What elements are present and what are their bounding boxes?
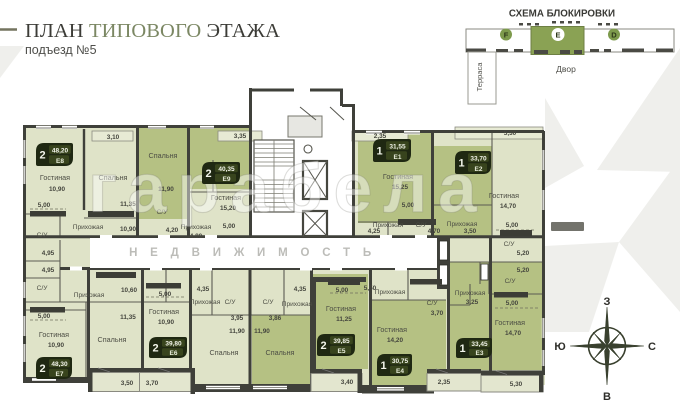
svg-text:F: F bbox=[504, 31, 509, 40]
svg-text:Спальня: Спальня bbox=[266, 348, 295, 357]
svg-text:С/У: С/У bbox=[37, 285, 49, 292]
svg-text:Прихожая: Прихожая bbox=[282, 301, 313, 308]
svg-text:С/У: С/У bbox=[225, 299, 237, 306]
svg-text:2: 2 bbox=[205, 168, 211, 180]
svg-text:48,20: 48,20 bbox=[52, 147, 69, 154]
svg-text:10,90: 10,90 bbox=[158, 319, 174, 326]
svg-text:С/У: С/У bbox=[427, 300, 439, 307]
svg-text:11,90: 11,90 bbox=[254, 328, 270, 335]
svg-text:Е2: Е2 bbox=[475, 166, 483, 173]
svg-text:Терраса: Терраса bbox=[475, 62, 484, 92]
svg-text:В: В bbox=[603, 391, 611, 403]
svg-text:11,25: 11,25 bbox=[336, 316, 352, 323]
svg-text:Е4: Е4 bbox=[396, 368, 404, 375]
svg-text:4,95: 4,95 bbox=[42, 250, 55, 257]
svg-text:14,70: 14,70 bbox=[505, 330, 521, 337]
svg-text:14,70: 14,70 bbox=[500, 203, 516, 210]
svg-text:гарабела: гарабела bbox=[88, 149, 487, 227]
svg-text:Спальня: Спальня bbox=[98, 335, 127, 344]
svg-text:Е9: Е9 bbox=[223, 176, 231, 183]
svg-text:10,90: 10,90 bbox=[49, 186, 65, 193]
svg-text:3,40: 3,40 bbox=[341, 379, 354, 386]
svg-text:3,70: 3,70 bbox=[146, 380, 159, 387]
svg-text:4,95: 4,95 bbox=[42, 267, 55, 274]
svg-text:5,00: 5,00 bbox=[38, 202, 51, 209]
svg-text:3,35: 3,35 bbox=[234, 133, 247, 140]
svg-text:СХЕМА БЛОКИРОВКИ: СХЕМА БЛОКИРОВКИ bbox=[509, 9, 615, 20]
svg-text:Гостиная: Гостиная bbox=[39, 330, 69, 339]
svg-text:39,85: 39,85 bbox=[333, 338, 350, 345]
svg-text:3,70: 3,70 bbox=[431, 310, 444, 317]
svg-text:Прихожая: Прихожая bbox=[190, 299, 221, 306]
svg-text:1: 1 bbox=[459, 343, 465, 355]
svg-text:4,25: 4,25 bbox=[368, 228, 381, 235]
svg-text:Гостиная: Гостиная bbox=[326, 304, 356, 313]
svg-text:Гостиная: Гостиная bbox=[377, 325, 407, 334]
svg-text:10,60: 10,60 bbox=[121, 287, 137, 294]
svg-text:33,70: 33,70 bbox=[470, 155, 487, 162]
svg-text:С: С bbox=[648, 341, 656, 353]
svg-text:С/У: С/У bbox=[263, 299, 275, 306]
svg-text:4,35: 4,35 bbox=[197, 286, 210, 293]
svg-text:3,10: 3,10 bbox=[107, 134, 120, 141]
svg-text:48,30: 48,30 bbox=[51, 361, 68, 368]
svg-text:14,20: 14,20 bbox=[387, 337, 403, 344]
svg-text:5,20: 5,20 bbox=[517, 250, 530, 257]
svg-text:10,90: 10,90 bbox=[48, 342, 64, 349]
svg-text:Е7: Е7 bbox=[56, 371, 64, 378]
svg-text:подъезд №5: подъезд №5 bbox=[25, 43, 97, 57]
svg-text:5,00: 5,00 bbox=[159, 291, 172, 298]
svg-text:4,35: 4,35 bbox=[294, 286, 307, 293]
svg-text:Двор: Двор bbox=[556, 64, 576, 74]
svg-text:Е3: Е3 bbox=[476, 350, 484, 357]
svg-text:3,95: 3,95 bbox=[231, 315, 244, 322]
svg-text:Ю: Ю bbox=[554, 341, 565, 353]
svg-text:Прихожая: Прихожая bbox=[455, 290, 486, 297]
svg-text:40,35: 40,35 bbox=[218, 166, 235, 173]
svg-text:З: З bbox=[604, 296, 611, 308]
svg-text:1: 1 bbox=[376, 146, 382, 158]
svg-text:5,00: 5,00 bbox=[38, 313, 51, 320]
svg-text:Прихожая: Прихожая bbox=[375, 289, 406, 296]
svg-text:2: 2 bbox=[152, 343, 158, 355]
svg-text:5,30: 5,30 bbox=[510, 381, 523, 388]
svg-text:Гостиная: Гостиная bbox=[149, 307, 179, 316]
svg-text:3,25: 3,25 bbox=[466, 299, 479, 306]
svg-text:4,20: 4,20 bbox=[166, 227, 179, 234]
svg-text:Гостиная: Гостиная bbox=[489, 191, 519, 200]
svg-text:Е6: Е6 bbox=[170, 350, 178, 357]
svg-text:ПЛАН ТИПОВОГО ЭТАЖА: ПЛАН ТИПОВОГО ЭТАЖА bbox=[25, 20, 280, 42]
svg-text:С/У: С/У bbox=[505, 278, 517, 285]
svg-text:Гостиная: Гостиная bbox=[495, 318, 525, 327]
svg-text:5,30: 5,30 bbox=[504, 130, 517, 137]
svg-text:1: 1 bbox=[380, 360, 386, 372]
svg-text:33,45: 33,45 bbox=[471, 341, 488, 348]
svg-text:31,55: 31,55 bbox=[389, 143, 406, 150]
svg-text:С/У: С/У bbox=[504, 241, 516, 248]
svg-text:Гостиная: Гостиная bbox=[40, 173, 70, 182]
svg-text:2: 2 bbox=[39, 150, 45, 162]
svg-text:D: D bbox=[611, 31, 617, 40]
svg-text:3,86: 3,86 bbox=[269, 315, 282, 322]
svg-text:4,70: 4,70 bbox=[428, 228, 441, 235]
svg-text:С/У: С/У bbox=[37, 232, 49, 239]
svg-text:39,80: 39,80 bbox=[165, 340, 182, 347]
svg-text:2: 2 bbox=[39, 363, 45, 375]
svg-text:5,00: 5,00 bbox=[336, 287, 349, 294]
svg-text:3,50: 3,50 bbox=[121, 380, 134, 387]
svg-text:Е1: Е1 bbox=[394, 154, 402, 161]
svg-text:Спальня: Спальня bbox=[210, 348, 239, 357]
svg-text:Е8: Е8 bbox=[56, 158, 64, 165]
svg-text:2,35: 2,35 bbox=[374, 133, 387, 140]
svg-text:НЕДВИЖИМОСТЬ: НЕДВИЖИМОСТЬ bbox=[129, 247, 384, 259]
svg-text:1: 1 bbox=[458, 158, 464, 170]
svg-text:10,90: 10,90 bbox=[120, 226, 136, 233]
svg-text:Е5: Е5 bbox=[338, 348, 346, 355]
svg-text:5,20: 5,20 bbox=[517, 267, 530, 274]
svg-text:5,00: 5,00 bbox=[506, 300, 519, 307]
svg-text:11,90: 11,90 bbox=[229, 328, 245, 335]
svg-text:2,35: 2,35 bbox=[438, 379, 451, 386]
svg-text:2: 2 bbox=[320, 340, 326, 352]
svg-text:3,50: 3,50 bbox=[464, 228, 477, 235]
svg-text:11,35: 11,35 bbox=[120, 314, 136, 321]
svg-text:Прихожая: Прихожая bbox=[74, 292, 105, 299]
svg-text:E: E bbox=[555, 31, 560, 40]
svg-text:5,00: 5,00 bbox=[506, 222, 519, 229]
svg-text:30,75: 30,75 bbox=[392, 358, 409, 365]
